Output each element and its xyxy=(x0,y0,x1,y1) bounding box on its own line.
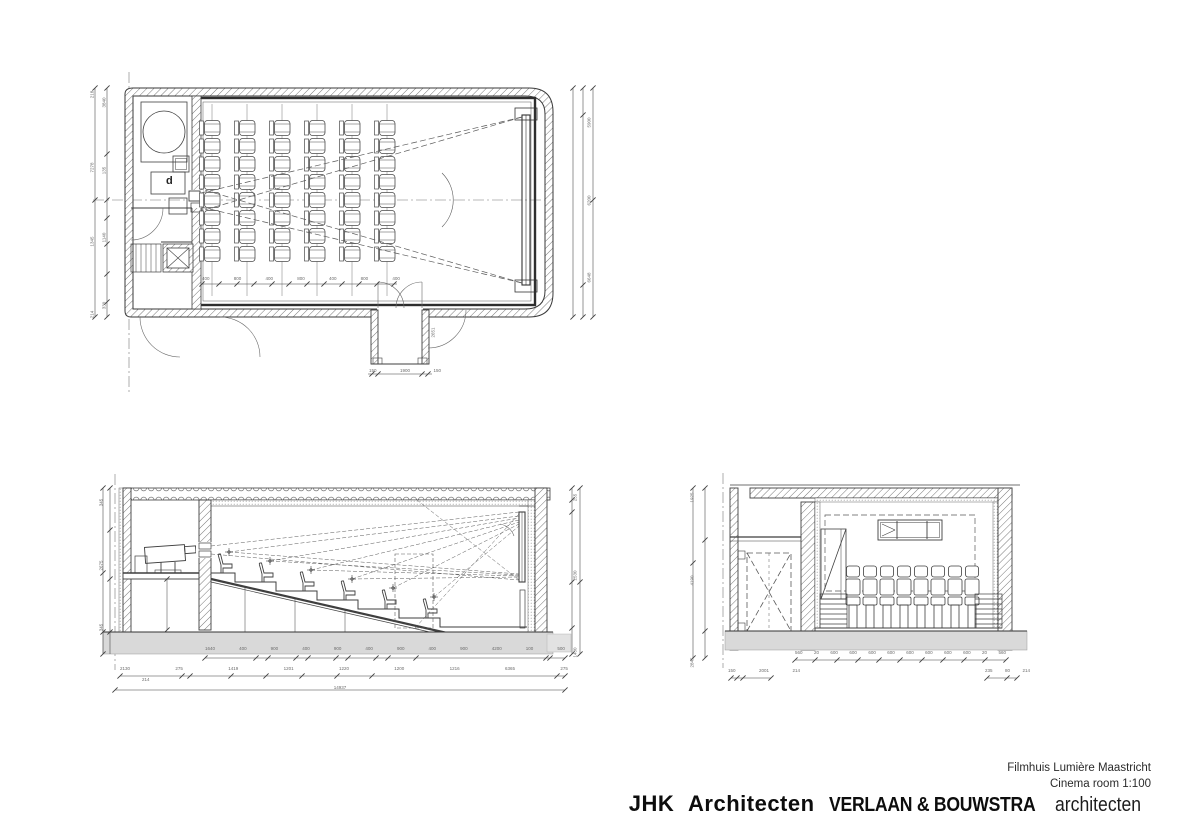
projection-booth xyxy=(131,96,203,309)
dim-label: 400 xyxy=(429,646,437,651)
sb-projection-window xyxy=(878,520,942,540)
section-long-dim-total: 14937 xyxy=(115,685,565,690)
sa-dimension-lines xyxy=(100,485,582,692)
plan-entry-side-dim: 2651 xyxy=(431,327,436,337)
exterior-door-swings xyxy=(140,317,260,357)
dim-label: 218 xyxy=(90,91,95,99)
booth-desk-label: d xyxy=(166,175,173,187)
dim-label: 6365 xyxy=(505,666,515,671)
architect-logos: JHK Architecten VERLAAN & BOUWSTRA archi… xyxy=(629,791,1153,817)
section-long-right-dims: 25525301430 xyxy=(570,495,580,655)
dim-label: 600 xyxy=(849,650,857,655)
section-cross-dim-row2-left: 1502001214 xyxy=(728,668,800,673)
dim-label: 900 xyxy=(271,646,279,651)
dim-label: 235 xyxy=(985,668,993,673)
sb-floor-slab xyxy=(725,631,1027,650)
dim-label: 4190 xyxy=(690,575,695,585)
sa-screen xyxy=(519,488,547,632)
dim-label: 600 xyxy=(963,650,971,655)
cross-section-drawing xyxy=(675,463,1075,713)
dim-label: 275 xyxy=(560,666,568,671)
sb-shaft-doors xyxy=(747,553,791,631)
dim-label: 275 xyxy=(175,666,183,671)
dim-label: 150 xyxy=(433,368,441,373)
plan-right-dims: 590062006648 xyxy=(584,120,594,280)
dim-label: 135 xyxy=(102,166,107,174)
dim-label: 14937 xyxy=(334,685,347,690)
drawing-sheet: { "title_block": { "project": "Filmhuis … xyxy=(0,0,1186,838)
seat-rows xyxy=(200,121,396,262)
dim-label: 600 xyxy=(868,650,876,655)
dim-label: 345 xyxy=(99,499,104,507)
verlaan-bouwstra-logo: VERLAAN & BOUWSTRA xyxy=(829,794,1035,817)
dim-label: 1220 xyxy=(339,666,349,671)
dim-label: 1345 xyxy=(90,236,95,246)
dim-label: 214 xyxy=(90,311,95,319)
dim-label: 400 xyxy=(365,646,373,651)
drawing-title: Cinema room 1:100 xyxy=(1007,776,1151,792)
sa-seats-profile xyxy=(218,548,438,618)
dim-label: 600 xyxy=(887,650,895,655)
dim-label: 6200 xyxy=(587,195,592,205)
plan-seat-pitch-dims: 400800400800400800400 xyxy=(202,276,400,281)
dim-label: 2675 xyxy=(99,560,104,570)
dim-label: 2530 xyxy=(573,570,578,580)
dim-label: 600 xyxy=(830,650,838,655)
dim-label: 400 xyxy=(239,646,247,651)
dim-label: 1140 xyxy=(102,233,107,243)
dim-label: 3840 xyxy=(102,97,107,107)
section-cross-dim-row2-right: 23580214 xyxy=(985,668,1030,673)
dim-label: 800 xyxy=(234,276,242,281)
section-cross-dim-row1: 5602060060060060060060060060020560 xyxy=(795,650,1006,655)
dim-label: 1419 xyxy=(228,666,238,671)
dim-label: 1900 xyxy=(400,368,410,373)
entry-vestibule xyxy=(371,282,466,364)
sb-seat-row xyxy=(846,566,979,628)
dim-label: 400 xyxy=(392,276,400,281)
dim-label: 6648 xyxy=(587,272,592,282)
dim-label: 800 xyxy=(297,276,305,281)
dim-label: 400 xyxy=(265,276,273,281)
dim-label: 2845 xyxy=(690,657,695,667)
dim-label: 1925 xyxy=(690,492,695,502)
dim-label: 255 xyxy=(573,494,578,502)
dim-label: 1640 xyxy=(205,646,215,651)
dim-label: 900 xyxy=(334,646,342,651)
entry-opening xyxy=(377,308,423,319)
dim-label: 800 xyxy=(361,276,369,281)
dim-label: 400 xyxy=(329,276,337,281)
dim-label: 600 xyxy=(944,650,952,655)
sa-projection-booth xyxy=(119,488,214,633)
dim-label: 900 xyxy=(460,646,468,651)
dim-label: 600 xyxy=(925,650,933,655)
dim-label: 80 xyxy=(1005,668,1010,673)
plan-left-outer-dims: 21872781345214 xyxy=(87,92,97,317)
dim-label: 20 xyxy=(814,650,819,655)
dim-label: 345 xyxy=(99,624,104,632)
sa-raked-floor xyxy=(211,573,527,636)
dim-label: 2001 xyxy=(759,668,769,673)
dim-label: 560 xyxy=(795,650,803,655)
sa-ceiling xyxy=(123,488,550,506)
dim-label: 1216 xyxy=(450,666,460,671)
dim-label: 150 xyxy=(369,368,377,373)
dim-label: 214 xyxy=(792,668,800,673)
section-long-dim-sub: 214 xyxy=(142,677,150,682)
dim-label: 7278 xyxy=(90,163,95,173)
dim-label: 4200 xyxy=(492,646,502,651)
dim-label: 400 xyxy=(202,276,210,281)
jhk-architecten-logo: JHK Architecten xyxy=(629,791,815,817)
dim-label: 1430 xyxy=(573,647,578,657)
plan-left-inner-dims: 38401351140330 xyxy=(99,100,109,308)
dim-label: 214 xyxy=(1022,668,1030,673)
dim-label: 600 xyxy=(906,650,914,655)
section-long-dim-row2: 2130275141912011220120012166365275 xyxy=(120,666,568,671)
dim-label: 500 xyxy=(557,646,565,651)
section-long-left-dims: 3452675345 xyxy=(96,500,106,630)
dim-label: 1201 xyxy=(284,666,294,671)
title-block: Filmhuis Lumière Maastricht Cinema room … xyxy=(1007,760,1151,792)
dim-label: 560 xyxy=(998,650,1006,655)
dim-label: 1200 xyxy=(394,666,404,671)
dim-label: 900 xyxy=(397,646,405,651)
floor-plan-drawing xyxy=(85,58,615,403)
dim-label: 5900 xyxy=(587,117,592,127)
dim-label: 150 xyxy=(728,668,736,673)
plan-entry-dims: 1501900150 xyxy=(369,368,441,373)
dim-label: 100 xyxy=(526,646,534,651)
section-long-dim-row1: 16404009004009004009004009004200100500 xyxy=(205,646,565,651)
dim-label: 330 xyxy=(102,302,107,310)
dim-label: 20 xyxy=(982,650,987,655)
verlaan-bouwstra-suffix: architecten xyxy=(1055,794,1141,817)
longitudinal-section-drawing xyxy=(95,470,590,720)
section-cross-left-dims: 192541902845 xyxy=(687,495,697,665)
project-title: Filmhuis Lumière Maastricht xyxy=(1007,760,1151,776)
dim-label: 400 xyxy=(302,646,310,651)
dim-label: 2130 xyxy=(120,666,130,671)
